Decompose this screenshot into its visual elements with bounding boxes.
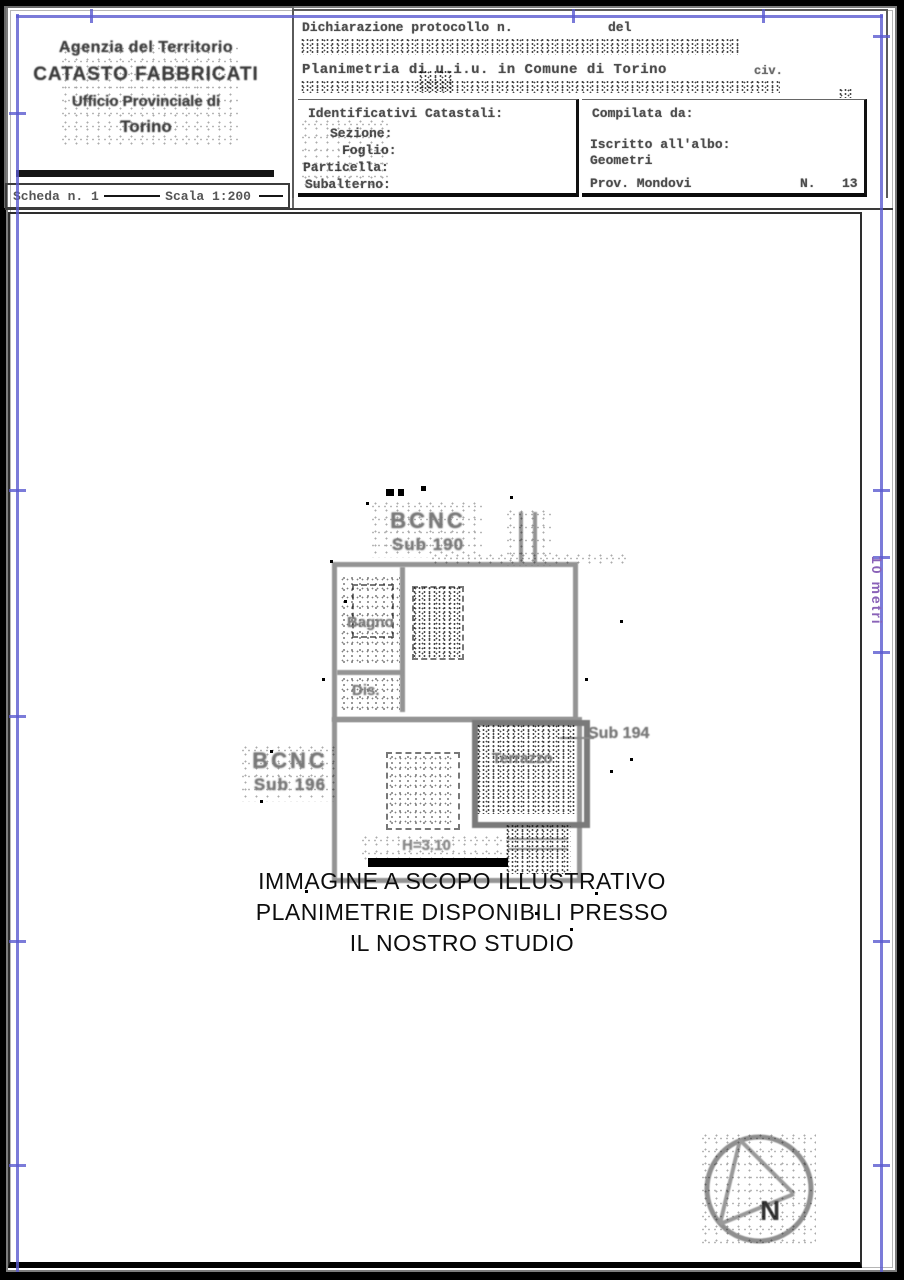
del-label: del <box>608 20 631 35</box>
blue-frame-left <box>16 14 19 1272</box>
watermark-line3: IL NOSTRO STUDIO <box>172 928 752 959</box>
plan-mark <box>386 489 394 496</box>
scheda-scala-bar: Scheda n. 1 Scala 1:200 <box>5 183 290 209</box>
watermark-line1: IMMAGINE A SCOPO ILLUSTRATIVO <box>172 866 752 897</box>
bcnc-top-label: BCNC Sub 190 <box>380 508 476 556</box>
bcnc-left-line1: BCNC <box>242 748 338 774</box>
blue-tick <box>9 112 26 115</box>
scan-noise <box>300 118 392 188</box>
bcnc-top-line1: BCNC <box>380 508 476 534</box>
terrazzo-label: Terrazzo <box>492 750 553 767</box>
provincia-label: Prov. Mondovi <box>590 176 691 191</box>
scheda-number: Scheda n. 1 <box>7 189 99 204</box>
blue-tick <box>9 940 26 943</box>
scala-value: Scala 1:200 <box>165 189 251 204</box>
scanned-cadastral-document: Agenzia del Territorio CATASTO FABBRICAT… <box>0 0 904 1280</box>
blue-tick <box>762 9 765 23</box>
scan-noise <box>476 724 576 814</box>
compiler-title: Compilata da: <box>592 106 693 121</box>
agency-header: Agenzia del Territorio CATASTO FABBRICAT… <box>30 36 262 140</box>
height-label: H=3.10 <box>402 837 451 854</box>
plan-mark <box>421 486 426 491</box>
scan-noise <box>700 1132 816 1244</box>
divider-line <box>259 195 283 197</box>
compiler-box: Compilata da: Iscritto all'albo: Geometr… <box>582 99 867 197</box>
scan-noise <box>388 754 454 824</box>
planimetria-line: Planimetria di u.i.u. in Comune di Torin… <box>302 62 667 78</box>
agency-name: Agenzia del Territorio <box>30 36 262 60</box>
scan-noise <box>300 80 780 93</box>
watermark-text: IMMAGINE A SCOPO ILLUSTRATIVO PLANIMETRI… <box>172 866 752 959</box>
albo-label: Iscritto all'albo: <box>590 137 730 152</box>
watermark-line2: PLANIMETRIE DISPONIBILI PRESSO <box>172 897 752 928</box>
scale-length-label: 10 metri <box>869 556 885 666</box>
albo-value: Geometri <box>590 153 652 168</box>
blue-tick <box>9 1164 26 1167</box>
blue-tick <box>90 9 93 23</box>
number-value: 13 <box>842 176 858 191</box>
blue-tick <box>873 940 890 943</box>
sub194-label: Sub 194 <box>588 725 649 743</box>
partition-wall-bagno-dis <box>337 670 403 675</box>
blue-tick <box>873 489 890 492</box>
plan-mark <box>398 489 404 496</box>
civ-label: civ. <box>754 64 783 78</box>
blue-tick <box>9 715 26 718</box>
redaction-blob <box>418 70 452 92</box>
office-line: Ufficio Provinciale di <box>30 90 262 113</box>
catasto-title: CATASTO FABBRICATI <box>30 60 262 90</box>
scan-noise <box>300 38 740 55</box>
blue-tick <box>572 9 575 23</box>
dis-label: Dis. <box>352 682 380 699</box>
divider-line <box>104 195 160 197</box>
scan-noise <box>838 88 854 98</box>
cadastral-identifiers-box: Identificativi Catastali: Sezione: Fogli… <box>298 99 579 197</box>
bcnc-left-label: BCNC Sub 196 <box>242 748 338 796</box>
scan-specks <box>330 560 333 563</box>
bcnc-left-line2: Sub 196 <box>242 774 338 796</box>
blue-tick <box>873 1164 890 1167</box>
number-label: N. <box>800 176 816 191</box>
blue-tick <box>9 489 26 492</box>
agency-divider <box>16 170 274 177</box>
blue-tick <box>873 35 890 38</box>
bagno-label: Bagno <box>347 614 394 631</box>
partition-wall-vertical <box>400 567 405 712</box>
bcnc-top-line2: Sub 190 <box>380 534 476 556</box>
city-name: Torino <box>30 113 262 140</box>
protocol-label: Dichiarazione protocollo n. <box>302 20 513 35</box>
scan-noise <box>412 586 462 658</box>
blue-frame-top <box>16 15 883 18</box>
